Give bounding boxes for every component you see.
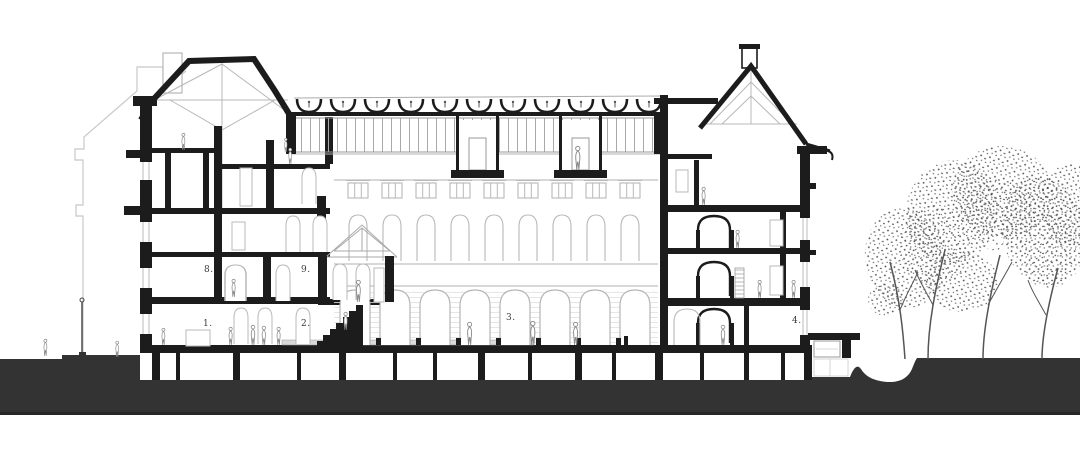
right-tower <box>654 44 833 353</box>
room-label-9: 9. <box>301 266 311 275</box>
tower-stair <box>735 268 744 298</box>
room-label-2: 2. <box>301 320 311 329</box>
tree-group <box>858 146 1080 359</box>
monitor-glass-line <box>294 96 664 98</box>
section-drawing <box>0 0 1080 455</box>
tower-left-wall <box>660 95 668 353</box>
central-hall <box>286 96 664 345</box>
hall-arch-windows <box>349 215 639 261</box>
right-annex <box>808 333 860 358</box>
tower-flat-roof <box>654 98 718 104</box>
section-drawing-canvas: 1. 2. 3. 4. 8. 9. <box>0 0 1080 455</box>
basement <box>152 353 812 380</box>
ground-floor-slab <box>140 345 812 353</box>
tower-roof <box>700 66 806 144</box>
hanging-room-left <box>451 114 504 178</box>
street-lamp <box>79 298 86 356</box>
room-label-8: 8. <box>204 266 214 275</box>
room-label-3: 3. <box>506 314 516 323</box>
tower-right-windows <box>803 218 807 335</box>
hanging-room-right <box>554 114 607 178</box>
room-label-1: 1. <box>203 320 213 329</box>
left-outer-wall <box>124 96 157 353</box>
annex-basement-lines <box>814 359 848 376</box>
roof-monitors <box>297 99 661 112</box>
room-label-4: 4. <box>792 317 802 326</box>
tower-vaults <box>696 216 734 345</box>
hall-upper-windows <box>346 181 642 199</box>
